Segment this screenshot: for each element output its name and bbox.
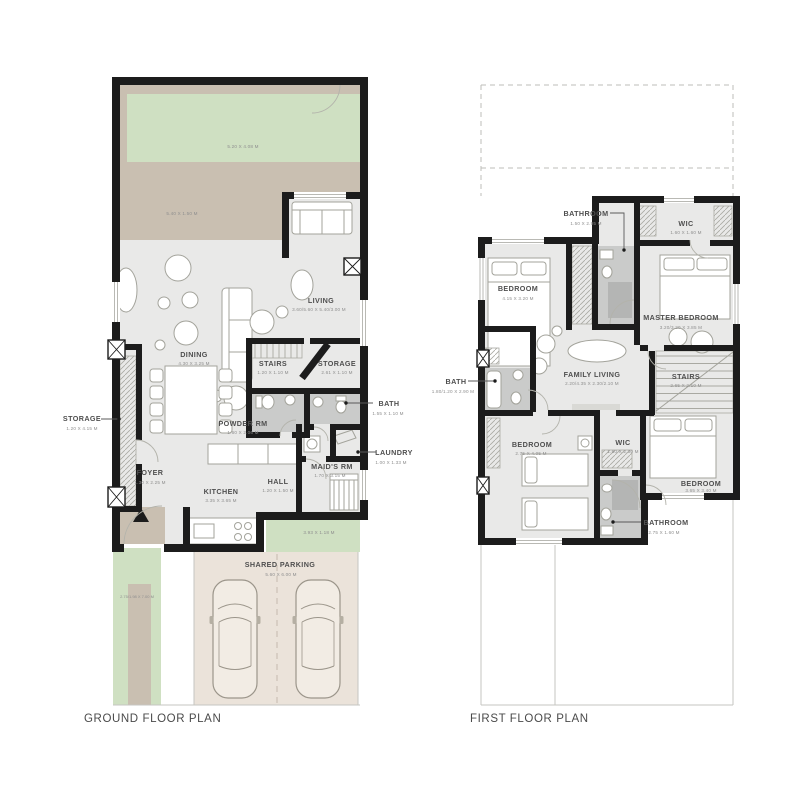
family-living-label: FAMILY LIVING [564,370,621,379]
bathroom-top-shower [608,282,632,318]
wic-top-label: WIC [678,219,693,228]
powder-label: POWDER RM [218,419,267,428]
bedroom-br-dims: 3.65 X 3.40 M [685,488,716,493]
parking-dims: 5.60 X 6.00 M [265,572,296,577]
ground-stairs-treads [252,342,302,358]
storage-mid-dims: 2.61 X 1.10 M [321,370,352,375]
first-stairs-treads [656,351,733,413]
garden-dims: 5.20 X 4.08 M [227,144,258,149]
column-marker [477,350,489,367]
bedroom-bl-dims: 2.75 X 4.05 M [515,451,546,456]
column-marker [108,340,125,359]
wic-bottom-label: WIC [615,438,630,447]
column-marker [108,487,125,507]
foyer-label: FOYER [137,468,164,477]
family-living-dims: 2.20/4.35 X 2.30/2.10 M [565,381,619,386]
side-yard-path [128,584,151,705]
wic-top-dims: 1.60 X 1.60 M [670,230,701,235]
laundry-label: LAUNDRY [375,448,413,457]
first-stairs-label: STAIRS [672,372,700,381]
first-floor-title: FIRST FLOOR PLAN [470,713,589,725]
maids-bed [330,474,358,510]
wic-top-closet-left [638,206,656,236]
kitchen-dims: 3.35 X 3.65 M [205,498,236,503]
sofa-alcove [292,202,352,234]
floorplan-page: 5.20 X 4.08 M 5.40 X 1.50 M LIVING 3.60/… [0,0,800,800]
rear-yard-dims: 3.93 X 1.18 M [303,530,334,535]
hall-label: HALL [268,477,289,486]
wic-top-closet-right [714,206,732,236]
bedroom-br-label: BEDROOM [681,479,721,488]
column-marker [477,477,489,494]
terrace-dims: 5.40 X 1.50 M [166,211,197,216]
first-floor-plan: BATHROOM 1.50 X 2.95 M WIC 1.60 X 1.60 M… [432,85,740,725]
bathroom-top-label: BATHROOM [564,209,609,218]
car-left [210,580,261,698]
bedroom-left-wardrobe [572,246,592,324]
powder-dims: 1.60 X 2.06 M [227,430,258,435]
bedroom-left-dims: 4.15 X 3.20 M [502,296,533,301]
dining-dims: 4.30 X 3.25 M [178,361,209,366]
storage-mid-label: STORAGE [318,359,356,368]
tv-console [572,404,620,410]
ground-floor-title: GROUND FLOOR PLAN [84,713,221,725]
ground-floor-plan: 5.20 X 4.08 M 5.40 X 1.50 M LIVING 3.60/… [63,77,413,725]
bedroom-bl-label: BEDROOM [512,440,552,449]
living-label: LIVING [308,296,334,305]
maids-dims: 1.70 X 3.15 M [314,473,345,478]
master-bedroom-dims: 3.20/3.20 X 3.85 M [660,325,702,330]
bedroom-left-label: BEDROOM [498,284,538,293]
bathroom-top-dims: 1.50 X 2.95 M [570,221,601,226]
terrace-region-lower [119,196,283,240]
master-bedroom-label: MASTER BEDROOM [643,313,718,322]
side-yard-dims: 2.75/1.98 X 7.00 M [120,594,154,599]
column-marker [344,258,361,275]
bath-left-label: BATH [445,377,466,386]
bath-label: BATH [378,399,399,408]
wic-bottom-dims: 1.60 X 2.30 M [607,449,638,454]
bathroom-bottom-dims: 2.75 X 1.60 M [648,530,679,535]
bath-left-dims: 1.80/1.20 X 2.90 M [432,389,474,394]
first-stairs-dims: 2.65 X 2.10 M [670,383,701,388]
storage-left-label: STORAGE [63,414,101,423]
bath-dims: 1.55 X 1.10 M [372,411,403,416]
dining-label: DINING [180,350,208,359]
living-dims: 3.60/5.60 X 5.40/3.00 M [292,307,346,312]
laundry-dims: 1.00 X 1.33 M [375,460,406,465]
floorplan-canvas: 5.20 X 4.08 M 5.40 X 1.50 M LIVING 3.60/… [0,0,800,800]
bathroom-bottom-label: BATHROOM [644,518,689,527]
stairs-label: STAIRS [259,359,287,368]
bedroom-bl-wardrobe [487,418,500,468]
maids-label: MAID'S RM [311,462,353,471]
garden-region [127,94,360,162]
kitchen-label: KITCHEN [204,487,239,496]
stairs-dims: 1.20 X 1.10 M [257,370,288,375]
bathroom-bottom-swing [612,480,638,510]
foyer-dims: 1.30 X 2.25 M [134,480,165,485]
bed-bottom-right [650,416,716,478]
storage-left-dims: 1.20 X 4.15 M [66,426,97,431]
hall-dims: 1.20 X 1.50 M [262,488,293,493]
parking-label: SHARED PARKING [245,560,316,569]
car-right [293,580,344,698]
